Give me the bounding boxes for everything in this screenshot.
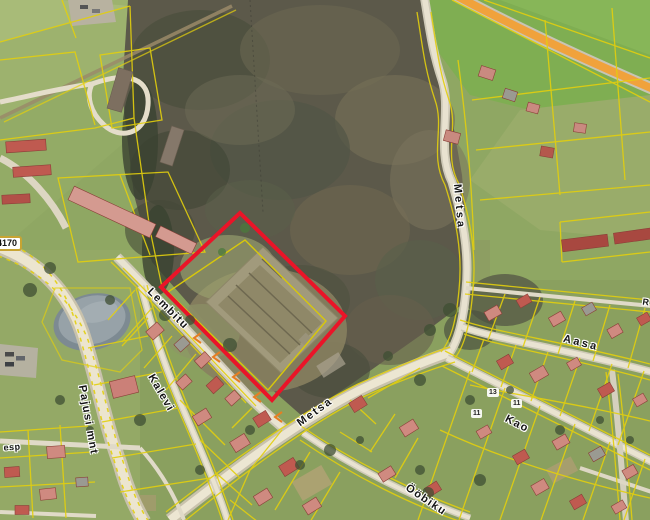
street-label-partial-right: R: [642, 297, 650, 308]
parcel-number: 13: [487, 388, 499, 397]
map-canvas[interactable]: Pajusi mnt Lembitu Kalevi Metsa Metsa Aa…: [0, 0, 650, 520]
road-number-badge: 4170: [0, 236, 22, 251]
parcel-number: 11: [511, 399, 522, 408]
parcel-number: 11: [471, 409, 482, 418]
street-label-partial-left: esp: [3, 441, 21, 452]
